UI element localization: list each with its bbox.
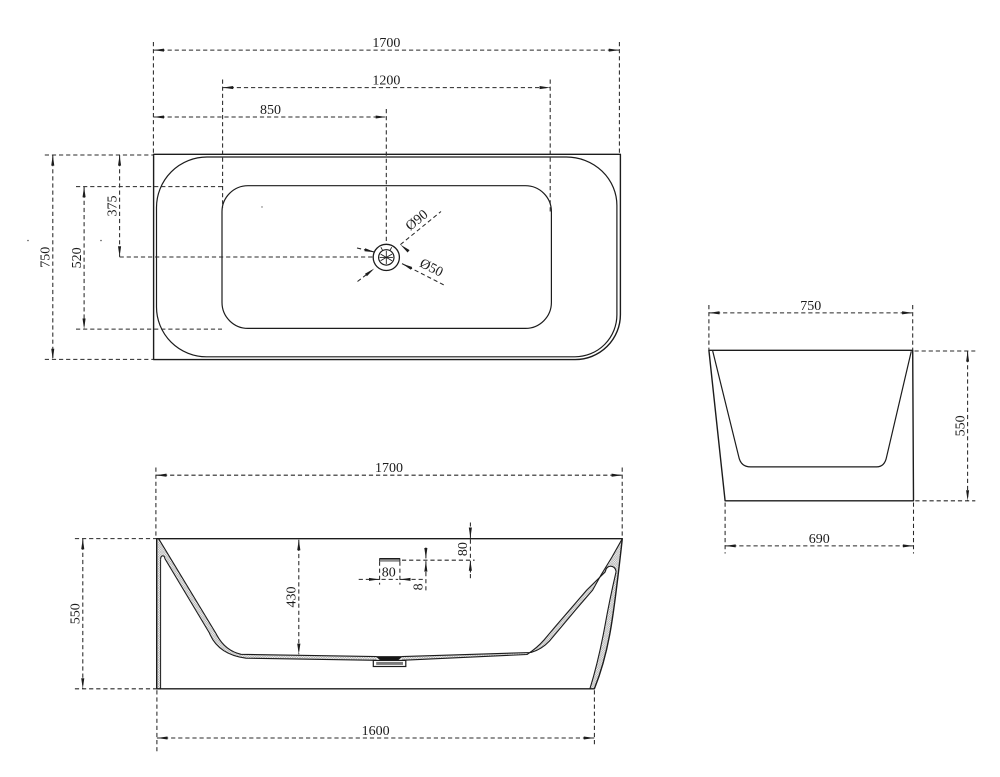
svg-text:850: 850 (260, 103, 281, 118)
svg-text:1200: 1200 (372, 74, 400, 89)
svg-text:550: 550 (953, 415, 968, 436)
svg-text:80: 80 (456, 542, 471, 556)
svg-text:690: 690 (809, 532, 830, 547)
svg-text:520: 520 (70, 247, 85, 268)
svg-text:1700: 1700 (375, 461, 403, 476)
svg-text:1700: 1700 (372, 36, 400, 51)
svg-text:375: 375 (105, 195, 120, 216)
svg-text:1600: 1600 (362, 724, 390, 739)
svg-text:550: 550 (69, 603, 84, 624)
svg-text:430: 430 (285, 586, 300, 607)
svg-text:80: 80 (382, 565, 396, 580)
svg-text:750: 750 (39, 247, 54, 268)
svg-text:8: 8 (412, 583, 427, 590)
svg-text:750: 750 (800, 299, 821, 314)
